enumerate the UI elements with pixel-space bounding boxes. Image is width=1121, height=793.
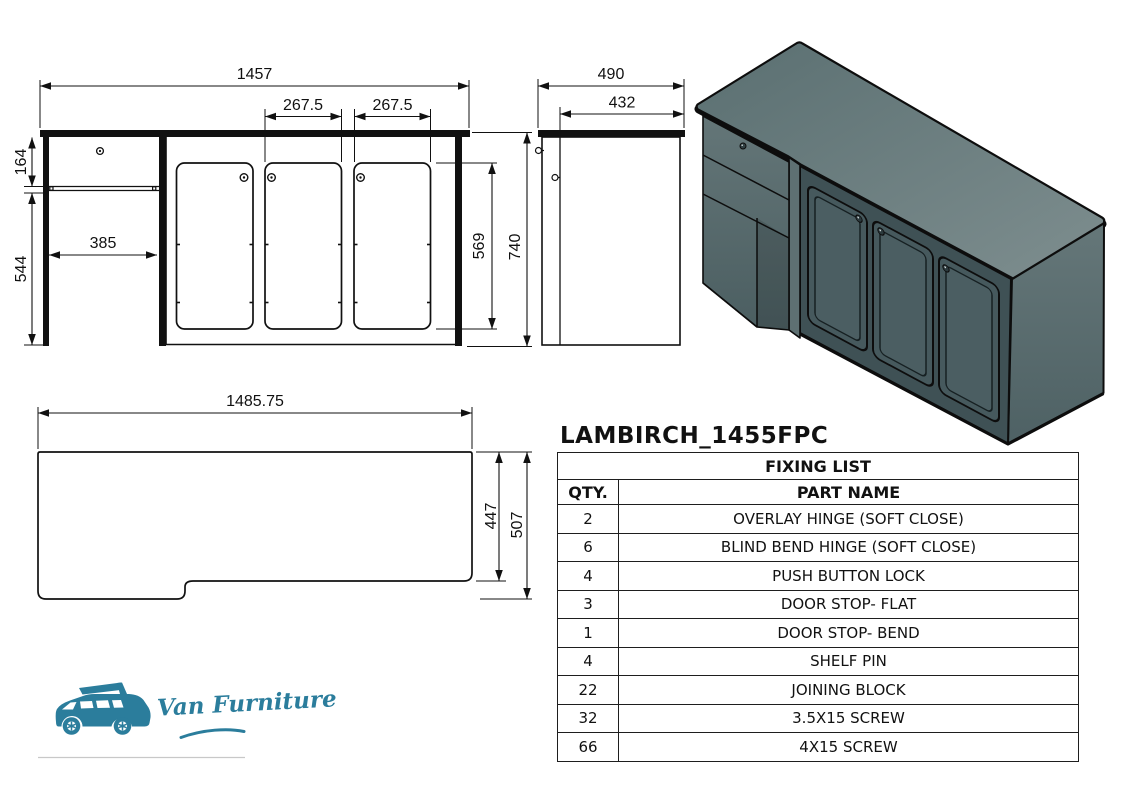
- dim-label: 267.5: [283, 97, 323, 114]
- table-row: 1 DOOR STOP- BEND: [558, 619, 1079, 648]
- iso-cabinet-left-strip: [789, 158, 800, 339]
- dim-label: 507: [509, 512, 526, 539]
- dim-front-drawer-height: 164: [13, 138, 46, 187]
- qty-cell: 6: [558, 533, 619, 562]
- part-cell: DOOR STOP- BEND: [619, 619, 1079, 648]
- part-cell: DOOR STOP- FLAT: [619, 590, 1079, 619]
- qty-cell: 22: [558, 676, 619, 705]
- van-icon: [56, 683, 151, 735]
- drawing-sheet: 1457 267.5 267.5 164 544 385: [0, 0, 1121, 793]
- logo-swoosh: [181, 730, 244, 738]
- part-cell: 4X15 SCREW: [619, 733, 1079, 762]
- part-cell: BLIND BEND HINGE (SOFT CLOSE): [619, 533, 1079, 562]
- dim-label: 740: [507, 234, 524, 261]
- dim-label: 267.5: [372, 97, 412, 114]
- part-cell: SHELF PIN: [619, 647, 1079, 676]
- wheel-icon: [63, 717, 81, 735]
- fixing-list-title: FIXING LIST: [558, 453, 1079, 480]
- drawing-title: LAMBIRCH_1455FPC: [560, 423, 828, 449]
- dim-label: 544: [13, 256, 30, 283]
- side-view-dimensions: 490 432: [538, 66, 684, 135]
- table-row: 4 PUSH BUTTON LOCK: [558, 562, 1079, 591]
- table-row: 2 OVERLAY HINGE (SOFT CLOSE): [558, 505, 1079, 534]
- right-panel: [455, 137, 462, 346]
- left-panel: [43, 137, 49, 346]
- qty-cell: 4: [558, 647, 619, 676]
- table-row: 4 SHELF PIN: [558, 647, 1079, 676]
- part-cell: 3.5X15 SCREW: [619, 704, 1079, 733]
- door-2: [265, 163, 342, 329]
- part-cell: PUSH BUTTON LOCK: [619, 562, 1079, 591]
- fixing-list-table: FIXING LIST QTY. PART NAME 2 OVERLAY HIN…: [557, 452, 1079, 762]
- dim-label: 569: [471, 233, 488, 260]
- drawer-front: [49, 148, 159, 191]
- door-1: [177, 163, 254, 329]
- dim-label: 447: [483, 503, 500, 530]
- qty-cell: 4: [558, 562, 619, 591]
- fixing-list-header: FIXING LIST: [558, 453, 1079, 480]
- table-row: 6 BLIND BEND HINGE (SOFT CLOSE): [558, 533, 1079, 562]
- dim-front-under-height: 544: [13, 193, 46, 345]
- dim-side-body-depth: 432: [560, 95, 684, 136]
- dim-front-door2-width: 267.5: [265, 97, 342, 162]
- door-3: [354, 163, 431, 329]
- dim-label: 432: [609, 95, 636, 112]
- table-row: 22 JOINING BLOCK: [558, 676, 1079, 705]
- dim-front-knee-width: 385: [49, 235, 157, 255]
- side-body: [542, 137, 680, 345]
- mid-panel: [159, 137, 166, 346]
- table-row: 3 DOOR STOP- FLAT: [558, 590, 1079, 619]
- dim-label: 164: [13, 149, 30, 176]
- qty-cell: 66: [558, 733, 619, 762]
- countertop-front: [40, 130, 470, 137]
- qty-cell: 2: [558, 505, 619, 534]
- part-name-column-header: PART NAME: [619, 480, 1079, 505]
- part-cell: JOINING BLOCK: [619, 676, 1079, 705]
- plan-view: [38, 452, 472, 599]
- dim-plan-panel-width: 1485.75: [38, 393, 472, 449]
- door-push-button-icons: [240, 174, 364, 182]
- front-view-dimensions: 1457 267.5 267.5 164 544 385: [13, 66, 532, 347]
- side-view: [536, 130, 686, 345]
- worktop-outline: [38, 452, 472, 599]
- cabinet-outline: [166, 137, 462, 345]
- part-cell: OVERLAY HINGE (SOFT CLOSE): [619, 505, 1079, 534]
- qty-column-header: QTY.: [558, 480, 619, 505]
- dim-front-door-height: 569: [436, 163, 497, 329]
- iso-drawer-button-icon: [740, 143, 746, 149]
- qty-cell: 3: [558, 590, 619, 619]
- wheel-icon: [114, 717, 132, 735]
- qty-cell: 32: [558, 704, 619, 733]
- dim-label: 1457: [237, 66, 273, 83]
- isometric-view: [697, 42, 1105, 444]
- table-row: 32 3.5X15 SCREW: [558, 704, 1079, 733]
- hinge-marks: [177, 245, 431, 303]
- dim-front-door3-width: 267.5: [355, 97, 431, 162]
- table-row: 66 4X15 SCREW: [558, 733, 1079, 762]
- fixing-list-column-headers: QTY. PART NAME: [558, 480, 1079, 505]
- dim-label: 490: [598, 66, 625, 83]
- qty-cell: 1: [558, 619, 619, 648]
- dim-label: 385: [90, 235, 117, 252]
- dim-label: 1485.75: [226, 393, 284, 410]
